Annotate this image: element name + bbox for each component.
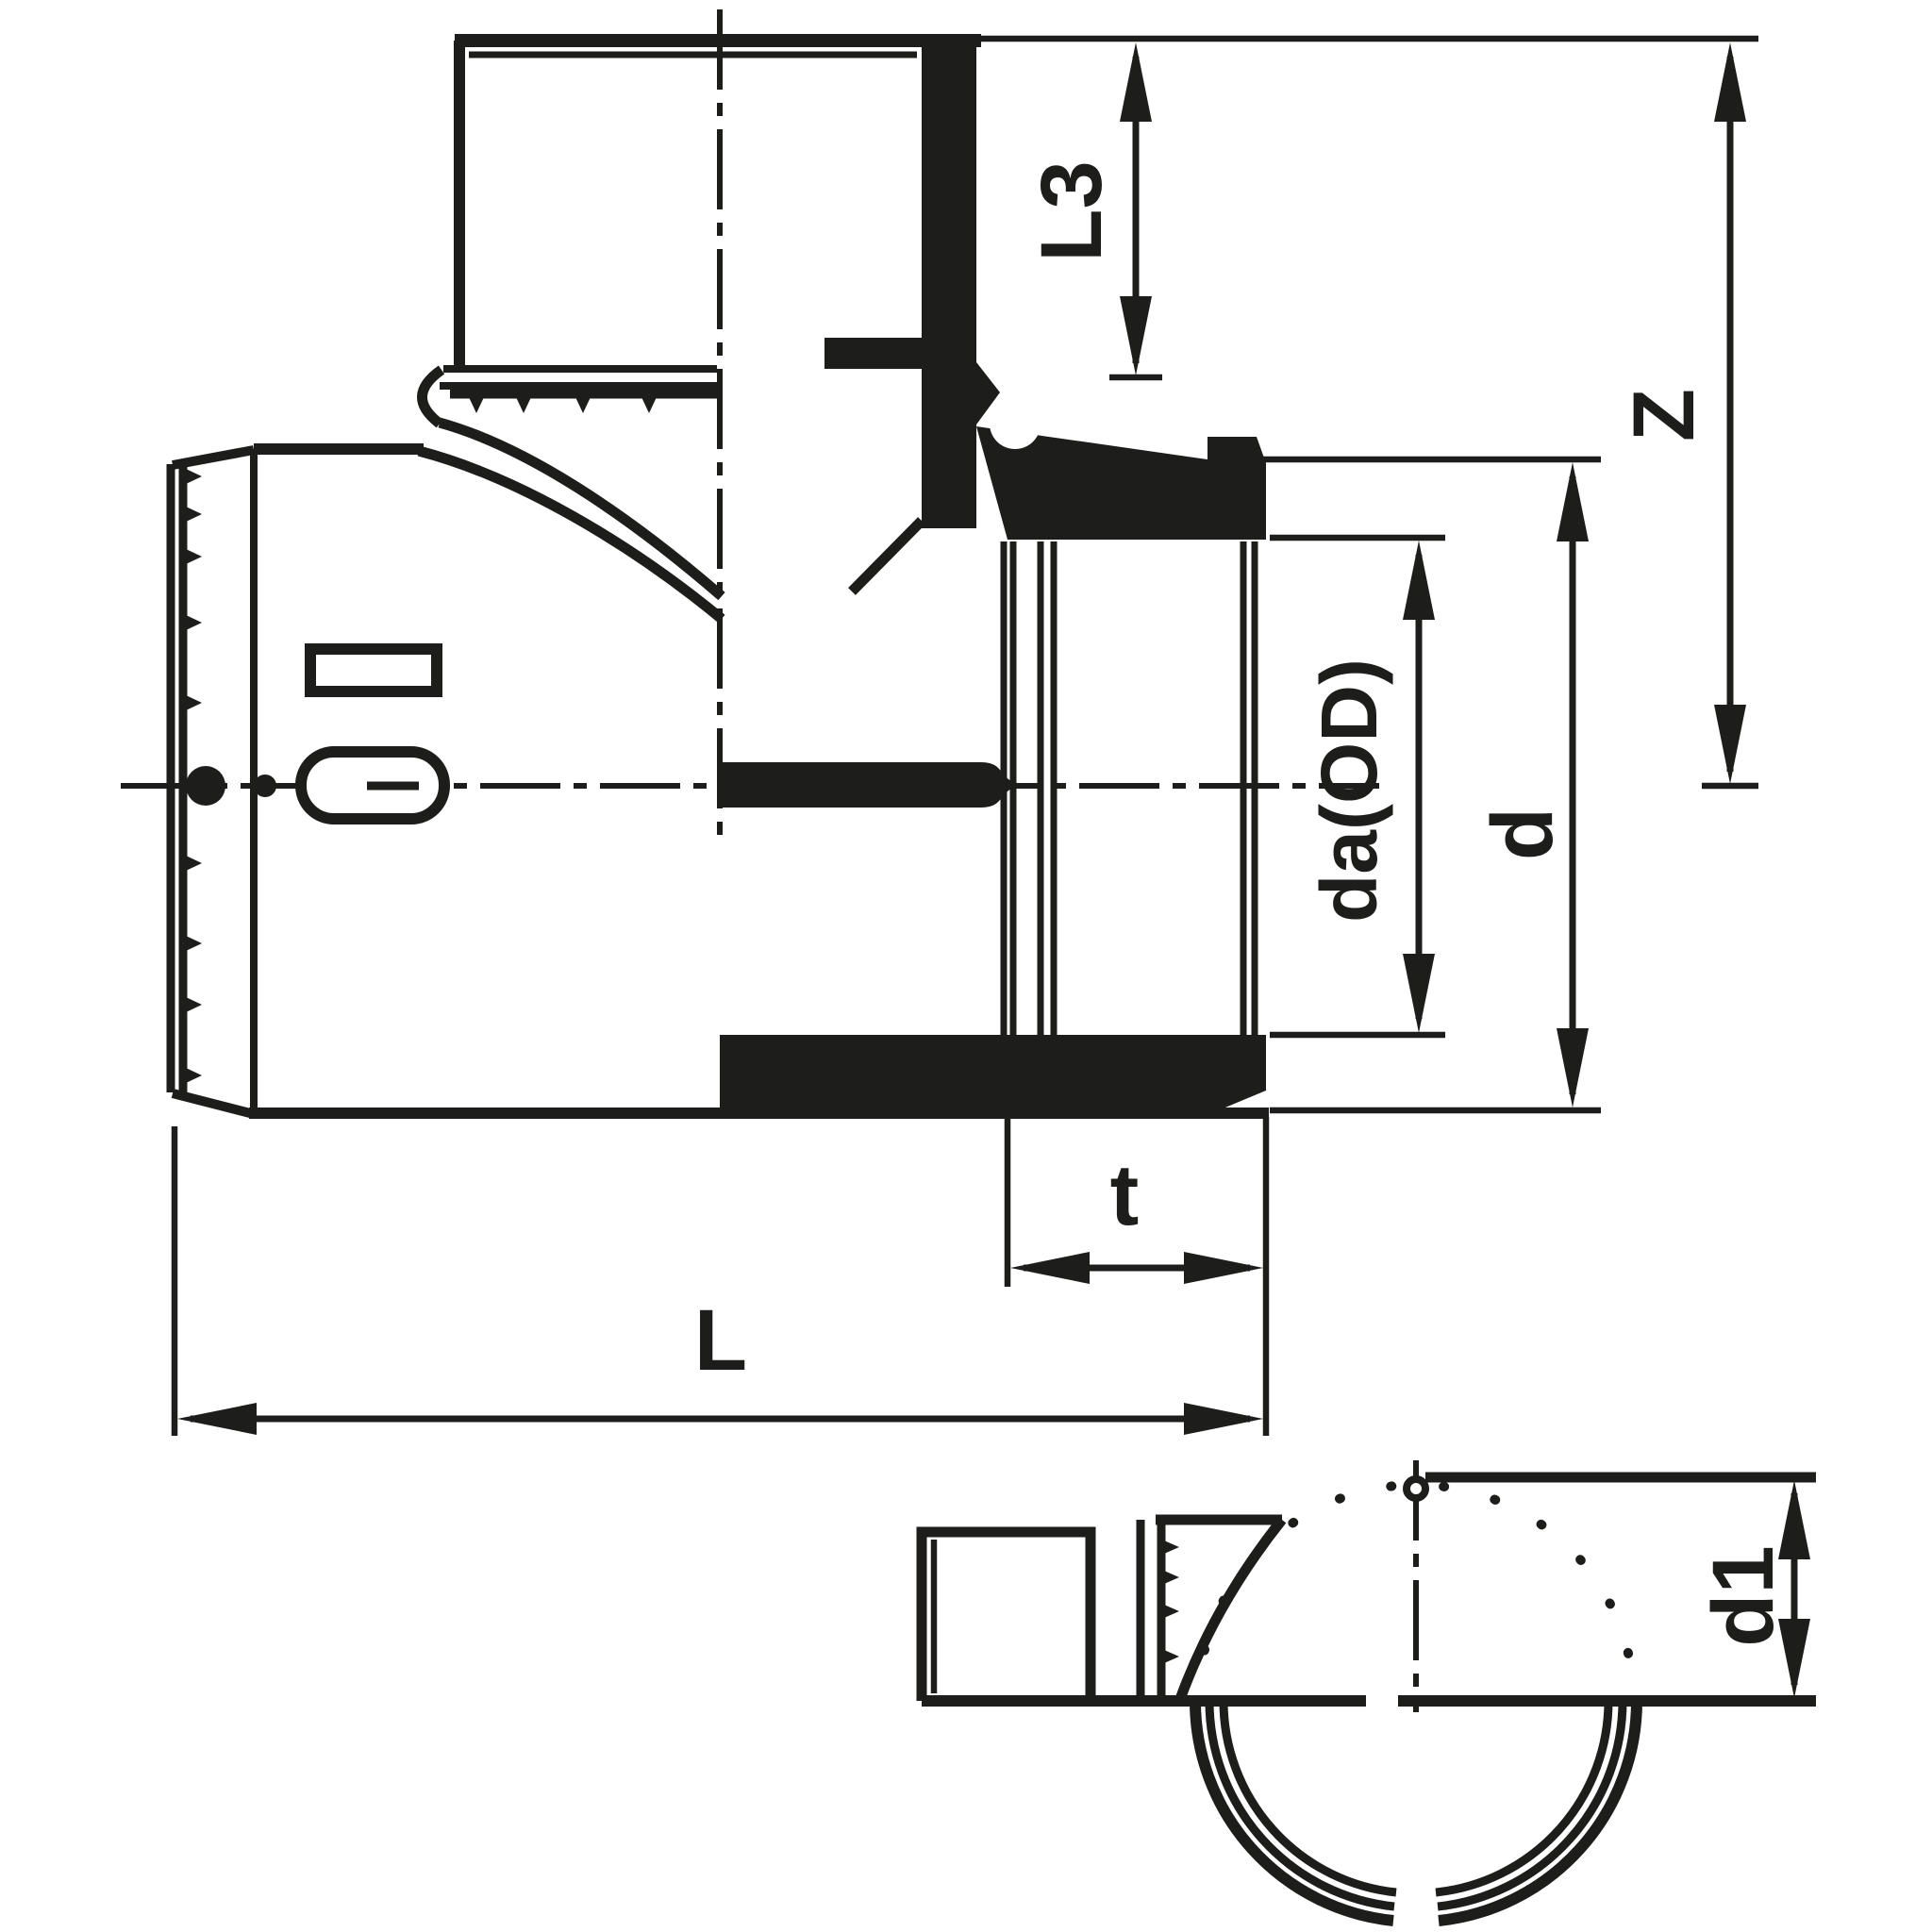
saddle-shoulder-curve-inner xyxy=(419,451,722,619)
branch-wall-section xyxy=(922,41,976,528)
dimension-L: L xyxy=(177,1292,1263,1435)
center-stop-section xyxy=(720,762,1017,808)
saddle-flank-curve xyxy=(1180,1520,1282,1699)
dimension-d1: d1 xyxy=(1695,1480,1810,1698)
indicator-window xyxy=(310,649,437,691)
section-fill-lower xyxy=(720,1035,1266,1113)
dim-label-Z: Z xyxy=(1616,389,1712,441)
dimension-t: t xyxy=(1010,1147,1263,1284)
branch-outlet-outline xyxy=(419,41,981,619)
dimension-L3: L3 xyxy=(1024,42,1152,375)
dim-label-daOD: da(OD) xyxy=(1305,658,1393,923)
bore-chamfer-edge xyxy=(852,521,922,591)
end-chamfer-top xyxy=(173,450,254,465)
dimension-Z: Z xyxy=(1616,42,1746,784)
dim-label-L: L xyxy=(694,1292,747,1389)
branch-stop-shoulder-section xyxy=(824,338,976,369)
lower-socket-wall-section xyxy=(720,1035,1266,1113)
dim-label-L3: L3 xyxy=(1024,160,1120,261)
dimension-d: d xyxy=(1474,462,1589,1108)
dim-label-d: d xyxy=(1474,808,1571,860)
dim-label-d1: d1 xyxy=(1695,1545,1791,1646)
bottom-view xyxy=(922,1477,1816,1921)
alignment-pin-large xyxy=(186,766,225,806)
fusion-indicators xyxy=(186,649,444,819)
section-fill-upper xyxy=(824,41,1266,591)
socket-arc-rings xyxy=(1195,1701,1637,1921)
spigot-end-outline xyxy=(922,1532,1091,1701)
tee-fitting-technical-drawing: L3 Z da(OD) d t L d1 xyxy=(0,0,1932,1932)
drawing-page: L3 Z da(OD) d t L d1 xyxy=(0,0,1932,1932)
fusion-tick xyxy=(516,397,531,413)
collar-groove xyxy=(990,398,1041,449)
alignment-pin-small xyxy=(254,774,276,797)
pipe-center-stop xyxy=(720,762,1017,808)
collar-lip-arc xyxy=(422,370,441,424)
centerlines xyxy=(121,9,1416,1712)
end-chamfer-bottom xyxy=(173,1093,254,1114)
axis-marker-circle xyxy=(1407,1479,1425,1498)
fusion-tick xyxy=(641,397,657,413)
saddle-joint-ticks xyxy=(1164,1541,1179,1663)
saddle-shoulder-curve-outer xyxy=(440,423,722,596)
fusion-tick xyxy=(469,397,484,413)
dimension-daOD: da(OD) xyxy=(1305,541,1435,1033)
dim-label-t: t xyxy=(1110,1147,1140,1243)
fusion-tick xyxy=(575,397,591,413)
